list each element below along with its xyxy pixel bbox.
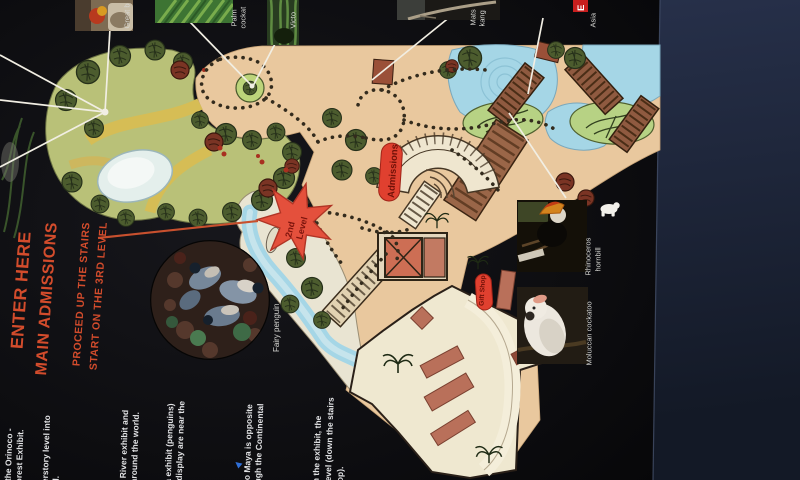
note-line: f the Orinoco - bbox=[4, 428, 15, 480]
legend-badge-box: E bbox=[573, 0, 588, 12]
photo-label-moluccan: Moluccan cockatoo bbox=[586, 301, 594, 365]
photo-fairy-penguin bbox=[150, 240, 270, 360]
note-line: el. bbox=[52, 476, 61, 480]
photo-rhinoceros-hornbill bbox=[517, 200, 587, 272]
photo-moluccan-cockatoo bbox=[517, 287, 588, 364]
note-line: hop). bbox=[336, 466, 345, 480]
legend-badge: E bbox=[576, 5, 587, 11]
photo-label-victoria: Victo bbox=[290, 12, 298, 29]
building-red-x bbox=[378, 233, 447, 280]
photo-label-matschie-2: kang bbox=[479, 10, 487, 26]
photo-label-great: Great b bbox=[124, 3, 132, 28]
admissions-pill: Admissions bbox=[378, 142, 403, 201]
photo-palm-fronds bbox=[155, 0, 233, 24]
photo-label-hornbill-2: hornbill bbox=[595, 247, 603, 271]
note-line: orest Exhibit. bbox=[15, 429, 25, 480]
note-line: gh the exhibit, the bbox=[312, 416, 323, 480]
photo-label-fairy-penguin: Fairy penguin bbox=[273, 304, 281, 352]
legend-region-label: Asia bbox=[590, 13, 598, 28]
note-line: around the world. bbox=[130, 412, 141, 480]
gift-shop-pill: Gift Shop bbox=[475, 273, 493, 310]
map-artwork: Admissions Gift Shop 2nd Level E bbox=[0, 0, 800, 480]
photo-label-palm-2: cockat bbox=[240, 7, 248, 29]
note-line: derstory level into bbox=[41, 415, 52, 480]
photo-label-matschie-1: Mats bbox=[470, 9, 478, 25]
photographed-zoo-map-brochure: Admissions Gift Shop 2nd Level E bbox=[0, 0, 800, 480]
photo-label-palm-1: Palm bbox=[231, 9, 239, 26]
photo-label-hornbill-1: Rhinoceros bbox=[585, 238, 593, 276]
